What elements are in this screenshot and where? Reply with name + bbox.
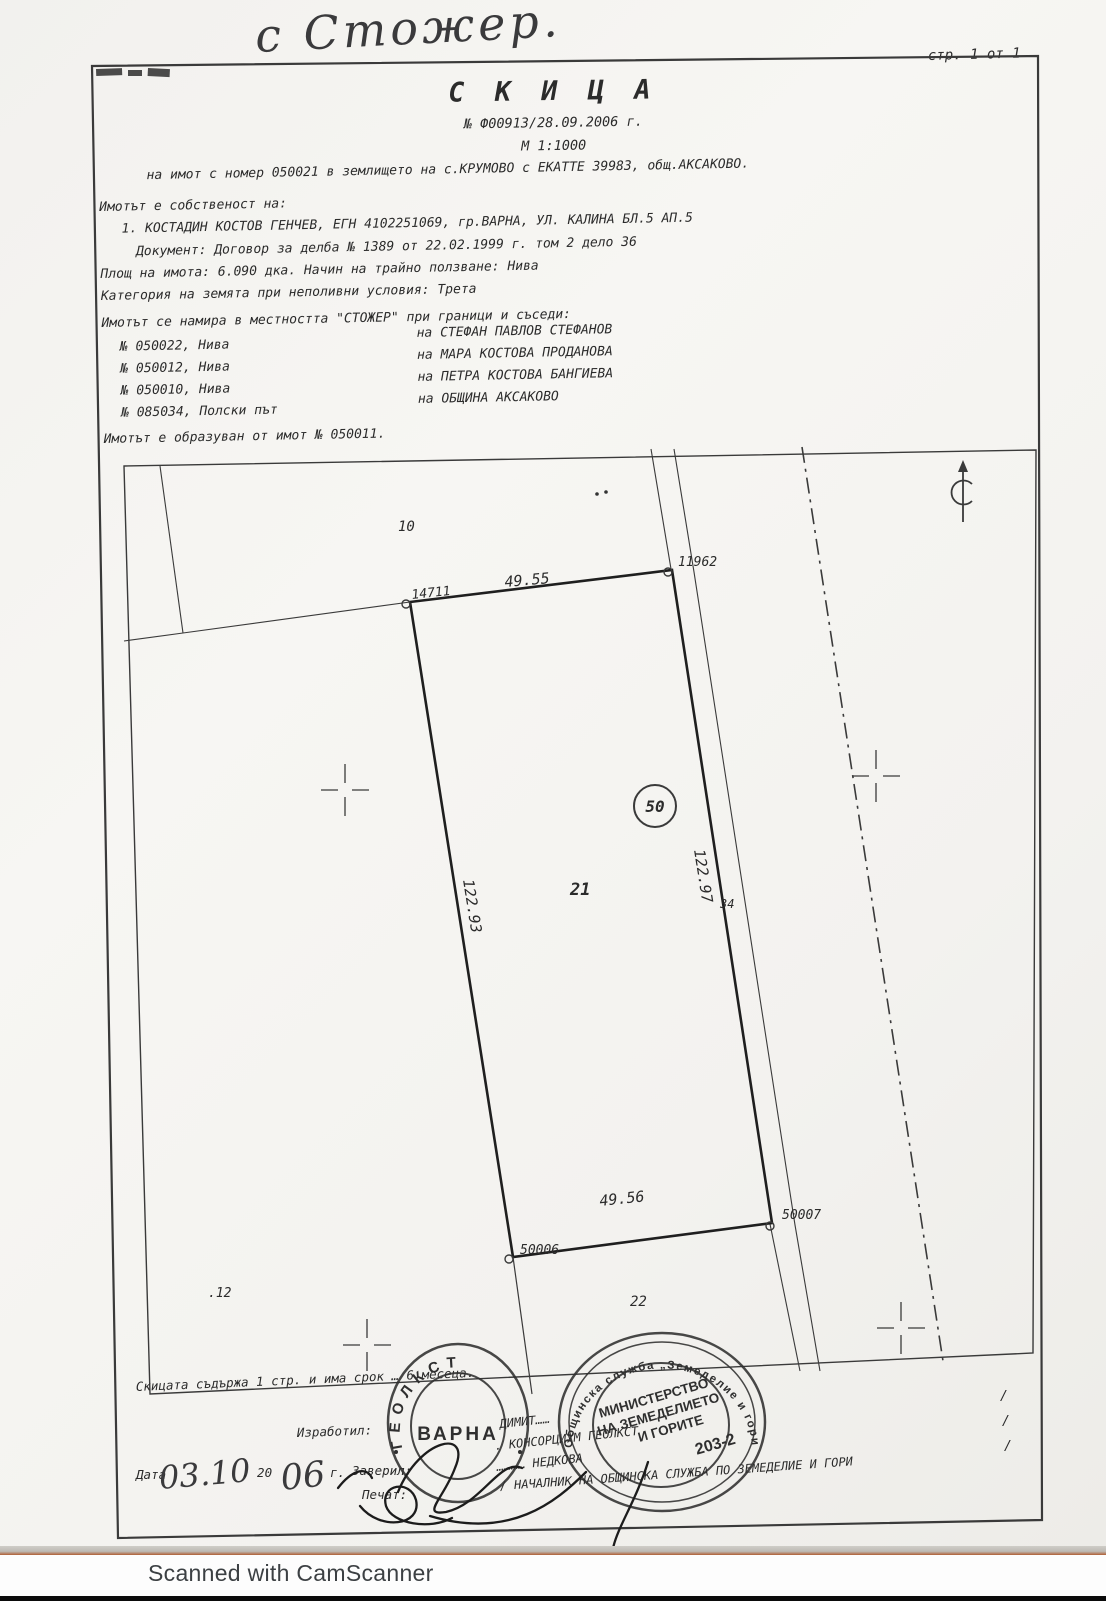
camscanner-label: Scanned with CamScanner	[148, 1560, 434, 1587]
bottom-black-bar	[0, 1596, 1106, 1601]
adjacent-parcel-22-label: 22	[630, 1294, 647, 1310]
subject-line: на имот с номер 050021 в землището на с.…	[146, 157, 749, 184]
ownership-heading: Имотът е собственост на:	[98, 196, 287, 215]
dimension-right: 122.97	[690, 848, 716, 904]
parcel-21-edge-extension	[513, 1257, 532, 1394]
handwritten-village-note: с Стожер.	[254, 0, 563, 63]
margin-slash: /	[1000, 1389, 1008, 1404]
document-title: С К И Ц А	[448, 74, 658, 108]
scanned-sketch-document: с Стожер. стр. 1 от 1 С К И Ц А № Ф00913…	[0, 0, 1106, 1546]
handwritten-date-year: 06	[279, 1455, 327, 1499]
neighbor-parcel: № 085034, Полски път	[119, 403, 278, 421]
massif-number: 50	[645, 797, 664, 816]
page-indicator: стр. 1 от 1	[928, 46, 1021, 64]
dimension-bottom: 49.56	[599, 1187, 646, 1210]
survey-point-markers	[402, 568, 774, 1263]
dimension-top: 49.55	[504, 569, 551, 591]
header-block: С К И Ц А № Ф00913/28.09.2006 г. М 1:100…	[448, 74, 659, 155]
cadastral-map: 14711 11962 50007 50006 49.55 49.56 122.…	[124, 447, 1036, 1394]
dimension-left: 122.93	[459, 878, 485, 934]
neighbors-list: № 050022, Нива на СТЕФАН ПАВЛОВ СТЕФАНОВ…	[118, 322, 614, 420]
parcel-10-boundary	[124, 466, 410, 641]
document-scan: с Стожер. стр. 1 от 1 С К И Ц А № Ф00913…	[0, 0, 1106, 1546]
adjacent-parcel-10-label: 10	[398, 519, 415, 535]
owner-line: 1. КОСТАДИН КОСТОВ ГЕНЧЕВ, ЕГН 410225106…	[121, 211, 693, 237]
area-line: Площ на имота: 6.090 дка. Начин на трайн…	[99, 259, 539, 282]
category-line: Категория на земята при неполивни услови…	[100, 282, 477, 304]
point-label-bottom-right: 50007	[782, 1208, 821, 1223]
neighbor-owner: на ПЕТРА КОСТОВА БАНГИЕВА	[417, 366, 613, 385]
neighbor-parcel: № 050010, Нива	[119, 382, 231, 399]
origin-line: Имотът е образуван от имот № 050011.	[102, 427, 385, 447]
neighbor-owner: на МАРА КОСТОВА ПРОДАНОВА	[417, 344, 613, 363]
stamp-number: 203-2	[693, 1431, 737, 1459]
date-suffix: г.	[330, 1465, 345, 1480]
margin-slash: /	[1002, 1414, 1010, 1429]
map-dot-marks	[595, 490, 608, 496]
road-parcel-label: 34	[719, 897, 734, 911]
point-label-bottom-left: 50006	[520, 1243, 559, 1258]
massif-number-badge: 50	[634, 785, 676, 827]
neighbor-parcel: № 050012, Нива	[118, 360, 230, 377]
north-arrow-icon	[952, 460, 972, 522]
adjacent-parcel-12-label: .12	[208, 1286, 232, 1301]
parcel-21-label: 21	[569, 880, 590, 900]
point-label-top-right: 11962	[678, 555, 717, 570]
handwritten-date-day: 03.10	[157, 1451, 252, 1497]
neighbor-owner: на СТЕФАН ПАВЛОВ СТЕФАНОВ	[417, 322, 613, 341]
date-typed-part: . 20	[242, 1465, 272, 1480]
scan-smudge	[96, 68, 170, 77]
prepared-by-label: Изработил:	[296, 1422, 373, 1440]
map-frame	[124, 450, 1036, 1394]
grid-cross-marks	[321, 750, 925, 1371]
camscanner-strip: Scanned with CamScanner	[0, 1546, 1106, 1601]
scan-page-edge	[0, 1546, 1106, 1555]
stamp-city-text: ВАРНА	[417, 1424, 499, 1445]
point-label-top-left: 14711	[411, 584, 451, 603]
dash-dot-boundary	[802, 447, 943, 1361]
property-text-block: на имот с номер 050021 в землището на с.…	[97, 157, 754, 447]
field-road-lines	[651, 449, 820, 1371]
document-scale: М 1:1000	[520, 137, 586, 154]
document-number: № Ф00913/28.09.2006 г.	[462, 114, 643, 133]
margin-slash: /	[1004, 1439, 1012, 1454]
neighbor-parcel: № 050022, Нива	[118, 338, 230, 355]
neighbor-owner: на ОБЩИНА АКСАКОВО	[418, 389, 559, 407]
document-line: Документ: Договор за делба № 1389 от 22.…	[135, 235, 637, 260]
